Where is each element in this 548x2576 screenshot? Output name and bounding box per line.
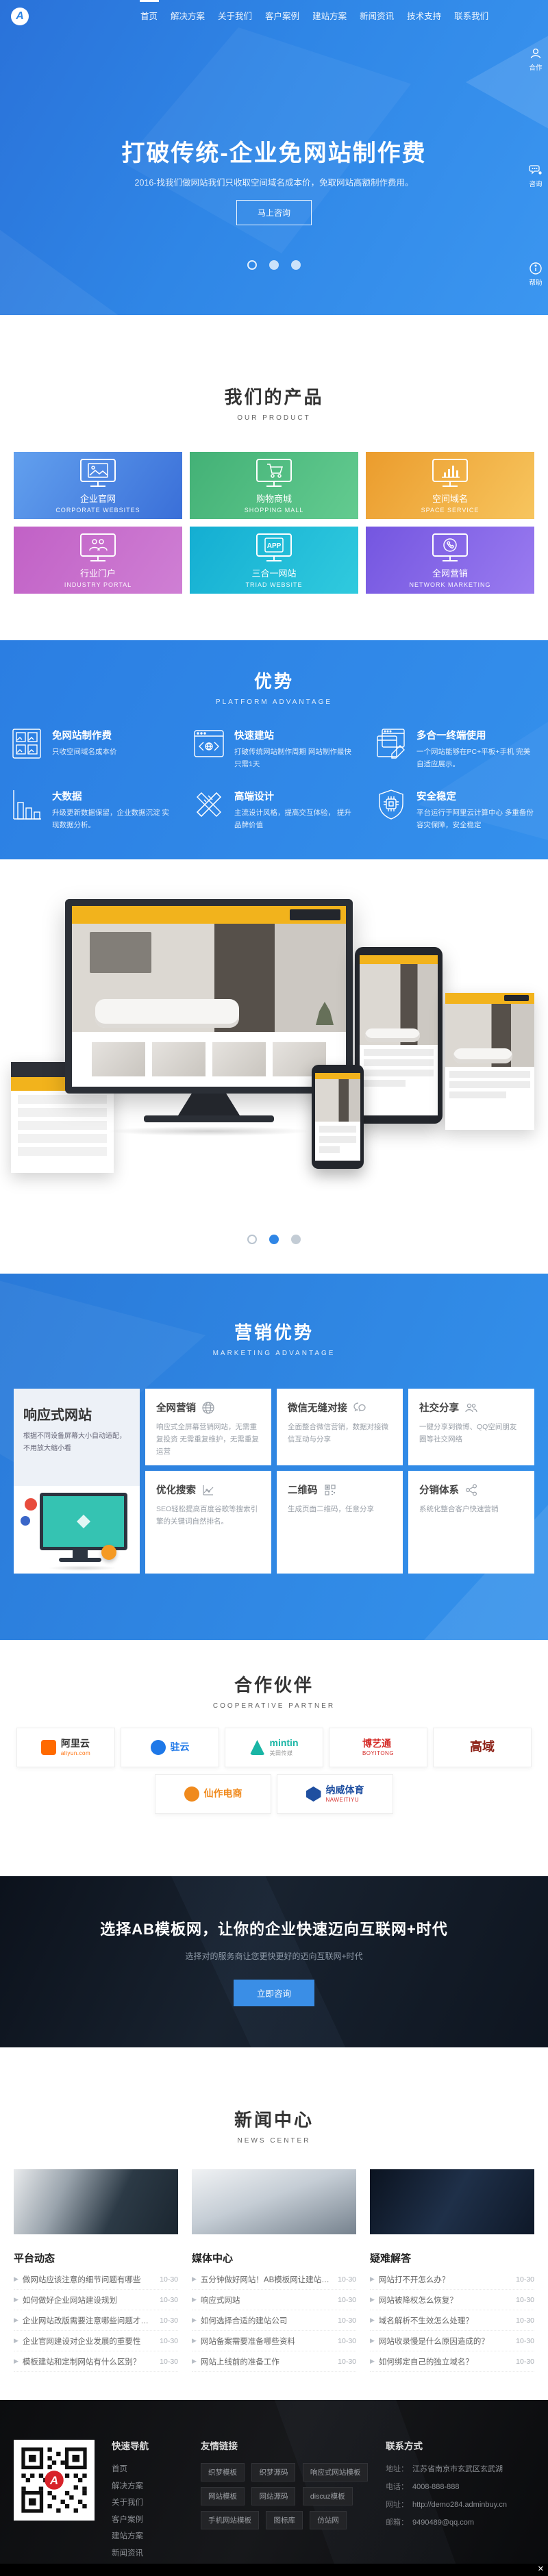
contact-email: 邮箱：9490489@qq.com — [386, 2516, 536, 2527]
friend-link[interactable]: 织梦模板 — [201, 2463, 245, 2482]
carousel-dot[interactable] — [269, 1235, 279, 1244]
monitor-frame — [65, 899, 353, 1094]
advantage-title: 快速建站 — [234, 728, 354, 742]
product-tile-netmarketing[interactable]: 全网营销 NETWORK MARKETING — [366, 527, 534, 594]
partner-xianzuo[interactable]: 仙作电商 — [155, 1774, 271, 1814]
footer-nav-solutions[interactable]: 解决方案 — [112, 2480, 149, 2491]
news-item[interactable]: ▶如何做好企业网站建设规划10-30 — [14, 2290, 178, 2310]
social-dot-blue — [21, 1516, 30, 1526]
news-column-title: 媒体中心 — [192, 2251, 356, 2265]
arrow-icon: ▶ — [192, 2275, 197, 2283]
news-column-media: 媒体中心 ▶五分钟做好网站！AB模板网让建站更简单10-30 ▶响应式网站10-… — [192, 2169, 356, 2372]
aliyun-logo-icon — [41, 1740, 56, 1755]
advantage-desc: 升级更新数据保留，企业数据沉淀 实现数据分析。 — [52, 807, 172, 832]
arrow-icon: ▶ — [370, 2316, 375, 2324]
arrow-icon: ▶ — [14, 2275, 18, 2283]
footer-quick-nav: 快速导航 首页 解决方案 关于我们 客户案例 建站方案 新闻资讯 技术支持 联系… — [112, 2438, 149, 2564]
site-header-bar — [72, 906, 346, 924]
xianzuo-logo-icon — [184, 1786, 199, 1802]
partners-row-1: 阿里云 aliyun.com 驻云 mintin 美田传媒 博艺通 BOYITO… — [0, 1728, 548, 1767]
partner-gaoyu[interactable]: 高域 — [433, 1728, 532, 1767]
partner-nawei[interactable]: 纳威体育 NAWEITIYU — [277, 1774, 393, 1814]
close-icon[interactable]: ✕ — [538, 2564, 544, 2573]
advantages-section: 优势 PLATFORM ADVANTAGE 免网站制作费只收空间域名成本价 快速… — [0, 640, 548, 859]
news-item[interactable]: ▶如何选择合适的建站公司10-30 — [192, 2310, 356, 2331]
shield-chip-icon — [374, 787, 408, 822]
product-name-en: SHOPPING MALL — [245, 507, 304, 514]
footer-nav-title: 快速导航 — [112, 2438, 149, 2452]
chart-line-icon — [201, 1483, 215, 1497]
site-logo[interactable]: A — [11, 8, 29, 25]
product-tile-triad[interactable]: APP 三合一网站 TRIAD WEBSITE — [190, 527, 358, 594]
card-title: 二维码 — [288, 1482, 318, 1497]
arrow-icon: ▶ — [14, 2358, 18, 2365]
marketing-cards-grid: 响应式网站 根据不同设备屏幕大小自动适配，不用放大缩小看 全网营销 响应式全屏幕… — [14, 1389, 534, 1574]
nav-item-contact[interactable]: 联系我们 — [454, 0, 488, 33]
social-dot-red — [25, 1498, 37, 1511]
card-title: 微信无缝对接 — [288, 1400, 347, 1415]
user-icon — [529, 47, 543, 60]
bar-chart-icon — [10, 787, 44, 822]
advantage-title: 高端设计 — [234, 789, 354, 803]
partner-name: 高域 — [470, 1741, 495, 1754]
news-item[interactable]: ▶网站打不开怎么办？10-30 — [370, 2269, 534, 2290]
monitor-screen — [72, 906, 346, 1087]
news-item[interactable]: ▶网站上线前的准备工作10-30 — [192, 2351, 356, 2372]
nav-item-news[interactable]: 新闻资讯 — [360, 0, 394, 33]
friend-link[interactable]: 仿站网 — [310, 2511, 347, 2529]
news-grid: 平台动态 ▶做网站应该注意的细节问题有哪些10-30 ▶如何做好企业网站建设规划… — [14, 2169, 534, 2372]
product-name-zh: 企业官网 — [80, 492, 116, 505]
partner-name: 仙作电商 — [204, 1789, 242, 1799]
card-title: 全网营销 — [156, 1400, 196, 1415]
nav-item-support[interactable]: 技术支持 — [407, 0, 441, 33]
arrow-icon: ▶ — [14, 2296, 18, 2303]
product-name-zh: 空间域名 — [432, 492, 468, 505]
product-name-en: INDUSTRY PORTAL — [64, 581, 132, 588]
hero-carousel-dots — [0, 260, 548, 273]
mintin-logo-icon — [250, 1740, 265, 1755]
desktop-monitor-mockup — [65, 899, 353, 1136]
zhuyun-logo-icon — [151, 1740, 166, 1755]
top-navigation-bar: A 首页 解决方案 关于我们 客户案例 建站方案 新闻资讯 技术支持 联系我们 — [0, 0, 548, 33]
friend-link[interactable]: 织梦源码 — [251, 2463, 295, 2482]
users-icon — [464, 1401, 478, 1415]
card-distribution[interactable]: 分销体系 系统化整合客户快速营销 — [408, 1471, 534, 1574]
news-photo — [14, 2169, 178, 2234]
responsive-showcase-section — [0, 859, 548, 1274]
card-title: 分销体系 — [419, 1482, 459, 1497]
website-screenshot-card — [445, 993, 534, 1130]
arrow-icon: ▶ — [192, 2337, 197, 2345]
products-section: 我们的产品 OUR PRODUCT 企业官网 CORPORATE WEBSITE… — [0, 315, 548, 640]
monitor-chart-icon — [431, 457, 469, 489]
product-name-en: SPACE SERVICE — [421, 507, 480, 514]
page: A 首页 解决方案 关于我们 客户案例 建站方案 新闻资讯 技术支持 联系我们 … — [0, 0, 548, 2576]
footer-nav-cases[interactable]: 客户案例 — [112, 2514, 149, 2525]
browser-code-icon — [192, 727, 226, 761]
nav-item-plans[interactable]: 建站方案 — [312, 0, 347, 33]
friend-link[interactable]: discuz模板 — [303, 2487, 353, 2505]
card-seo[interactable]: 优化搜索 SEO轻松提高百度谷歌等搜索引擎的关键词自然排名。 — [145, 1471, 271, 1574]
toolbar-cooperation[interactable]: 合作 — [523, 47, 548, 72]
marketing-section: 营销优势 MARKETING ADVANTAGE 响应式网站 根据不同设备屏幕大… — [0, 1274, 548, 1640]
product-name-en: CORPORATE WEBSITES — [55, 507, 140, 514]
tablet-mockup — [355, 947, 443, 1124]
news-subtitle: NEWS CENTER — [0, 2137, 548, 2145]
card-desc: SEO轻松提高百度谷歌等搜索引擎的关键词自然排名。 — [156, 1504, 260, 1528]
partner-zhuyun[interactable]: 驻云 — [121, 1728, 219, 1767]
arrow-icon: ▶ — [192, 2316, 197, 2324]
monitor-base — [144, 1115, 274, 1122]
arrow-icon: ▶ — [14, 2337, 18, 2345]
product-tile-portal[interactable]: 行业门户 INDUSTRY PORTAL — [14, 527, 182, 594]
qr-center-logo: A — [49, 2474, 58, 2487]
news-item[interactable]: ▶模板建站和定制网站有什么区别？10-30 — [14, 2351, 178, 2372]
news-item[interactable]: ▶五分钟做好网站！AB模板网让建站更简单10-30 — [192, 2269, 356, 2290]
partner-name: 纳威体育 — [326, 1785, 364, 1795]
advantage-desc: 只收空间域名成本价 — [52, 746, 172, 759]
nav-item-solutions[interactable]: 解决方案 — [171, 0, 205, 33]
product-name-en: TRIAD WEBSITE — [245, 581, 302, 588]
product-name-zh: 三合一网站 — [251, 566, 296, 579]
card-desc: 响应式全屏幕营销网站，无需重复投资 无需重复维护，无需重复运营 — [156, 1422, 260, 1459]
nav-item-about[interactable]: 关于我们 — [218, 0, 252, 33]
carousel-dot[interactable] — [247, 260, 257, 270]
news-title: 新闻中心 — [0, 2106, 548, 2132]
friend-link[interactable]: 响应式网站模板 — [303, 2463, 369, 2482]
news-item[interactable]: ▶如何绑定自己的独立域名？10-30 — [370, 2351, 534, 2372]
partners-row-2: 仙作电商 纳威体育 NAWEITIYU — [0, 1774, 548, 1814]
product-thumbnails-strip — [72, 1032, 346, 1087]
phone-mockup — [312, 1065, 364, 1169]
news-item[interactable]: ▶域名解析不生效怎么处理？10-30 — [370, 2310, 534, 2331]
advantage-title: 大数据 — [52, 789, 172, 803]
advantages-title: 优势 — [0, 668, 548, 693]
monitor-image-icon — [79, 457, 117, 489]
cta-title: 选择AB模板网，让你的企业快速迈向互联网+时代 — [0, 1917, 548, 1939]
arrow-icon: ▶ — [370, 2296, 375, 2303]
partners-section: 合作伙伴 COOPERATIVE PARTNER 阿里云 aliyun.com … — [0, 1640, 548, 1876]
hero-consult-button[interactable]: 马上咨询 — [236, 200, 312, 225]
pointer-cursor — [101, 1545, 116, 1560]
windows-pencil-icon — [374, 727, 408, 761]
news-column-faq: 疑难解答 ▶网站打不开怎么办？10-30 ▶网站被降权怎么恢复？10-30 ▶域… — [370, 2169, 534, 2372]
hero-section: A 首页 解决方案 关于我们 客户案例 建站方案 新闻资讯 技术支持 联系我们 … — [0, 0, 548, 315]
monitor-cart-icon — [255, 457, 293, 489]
arrow-icon: ▶ — [370, 2337, 375, 2345]
partner-name: 驻云 — [171, 1742, 190, 1752]
footer-links-title: 友情链接 — [201, 2438, 373, 2452]
image-grid-icon — [10, 727, 44, 761]
news-column-platform: 平台动态 ▶做网站应该注意的细节问题有哪些10-30 ▶如何做好企业网站建设规划… — [14, 2169, 178, 2372]
nawei-logo-icon — [306, 1786, 321, 1802]
partner-name: 阿里云 — [61, 1739, 90, 1749]
nav-item-cases[interactable]: 客户案例 — [265, 0, 299, 33]
news-column-title: 疑难解答 — [370, 2251, 534, 2265]
carousel-dot[interactable] — [291, 260, 301, 270]
advantage-title: 免网站制作费 — [52, 728, 172, 742]
qrcode-icon — [323, 1483, 337, 1497]
monitor-app-icon: APP — [255, 532, 293, 564]
footer-nav-home[interactable]: 首页 — [112, 2463, 149, 2474]
product-name-zh: 全网营销 — [432, 566, 468, 579]
responsive-feature-card[interactable]: 响应式网站 根据不同设备屏幕大小自动适配，不用放大缩小看 — [14, 1389, 140, 1574]
card-desc: 全面整合微信营销，数据对接微信互动与分享 — [288, 1422, 392, 1446]
nav-item-home[interactable]: 首页 — [140, 0, 158, 33]
hero-title: 打破传统-企业免网站制作费 — [0, 134, 548, 168]
card-wechat[interactable]: 微信无缝对接 全面整合微信营销，数据对接微信互动与分享 — [277, 1389, 403, 1465]
responsive-illustration — [14, 1486, 140, 1574]
product-name-en: NETWORK MARKETING — [409, 581, 490, 588]
news-item[interactable]: ▶做网站应该注意的细节问题有哪些10-30 — [14, 2269, 178, 2290]
feature-title: 响应式网站 — [23, 1404, 130, 1424]
toolbar-label: 帮助 — [523, 277, 548, 287]
carousel-dot[interactable] — [291, 1235, 301, 1244]
product-name-zh: 行业门户 — [80, 566, 116, 579]
news-photo — [370, 2169, 534, 2234]
bottom-bar: ✕ — [0, 2564, 548, 2576]
card-desc: 一键分享到微博、QQ空间朋友圈等社交网络 — [419, 1422, 523, 1446]
product-tile-domain[interactable]: 空间域名 SPACE SERVICE — [366, 452, 534, 519]
partners-subtitle: COOPERATIVE PARTNER — [0, 1702, 548, 1710]
monitor-stand — [178, 1094, 240, 1115]
card-desc: 生成页面二维码，任意分享 — [288, 1504, 392, 1516]
product-tile-mall[interactable]: 购物商城 SHOPPING MALL — [190, 452, 358, 519]
partner-aliyun[interactable]: 阿里云 aliyun.com — [16, 1728, 115, 1767]
arrow-icon: ▶ — [192, 2358, 197, 2365]
footer: A 快速导航 首页 解决方案 关于我们 客户案例 建站方案 新闻资讯 技术支持 … — [0, 2400, 548, 2564]
news-item[interactable]: ▶响应式网站10-30 — [192, 2290, 356, 2310]
partner-boyitong[interactable]: 博艺通 BOYITONG — [329, 1728, 427, 1767]
partner-name: 博艺通 — [362, 1739, 394, 1749]
arrow-icon: ▶ — [192, 2296, 197, 2303]
cta-consult-button[interactable]: 立即咨询 — [234, 1980, 314, 2006]
feature-desc: 根据不同设备屏幕大小自动适配，不用放大缩小看 — [23, 1430, 130, 1455]
globe-icon — [201, 1401, 215, 1415]
advantage-fast-build: 快速建站打破传统网站制作周期 网站制作最快只需1天 — [192, 727, 356, 771]
toolbar-label: 合作 — [523, 62, 548, 72]
news-photo — [192, 2169, 356, 2234]
carousel-dot[interactable] — [269, 260, 279, 270]
wechat-icon — [353, 1401, 366, 1415]
carousel-dot[interactable] — [247, 1235, 257, 1244]
app-icon-label: APP — [267, 542, 282, 550]
footer-friend-links: 友情链接 织梦模板 织梦源码 响应式网站模板 网站模板 网站源码 discuz模… — [201, 2438, 373, 2535]
advantage-desc: 主流设计风格，提高交互体验， 提升品牌价值 — [234, 807, 354, 832]
partners-title: 合作伙伴 — [0, 1671, 548, 1697]
contact-website: 网址：http://demo284.adminbuy.cn — [386, 2499, 536, 2510]
card-social-share[interactable]: 社交分享 一键分享到微博、QQ空间朋友圈等社交网络 — [408, 1389, 534, 1465]
news-item[interactable]: ▶企业网站改版需要注意哪些问题才不掉权重10-30 — [14, 2310, 178, 2331]
friend-link[interactable]: 网站模板 — [201, 2487, 245, 2505]
partner-sub: aliyun.com — [61, 1750, 90, 1756]
card-network-marketing[interactable]: 全网营销 响应式全屏幕营销网站，无需重复投资 无需重复维护，无需重复运营 — [145, 1389, 271, 1465]
card-desc: 系统化整合客户快速营销 — [419, 1504, 523, 1516]
advantage-title: 多合一终端使用 — [416, 728, 536, 742]
footer-contact: 联系方式 地址：江苏省南京市玄武区玄武湖 电话：4008-888-888 网址：… — [386, 2438, 536, 2534]
partner-sub: NAWEITIYU — [326, 1797, 364, 1803]
news-item[interactable]: ▶企业官网建设对企业发展的重要性10-30 — [14, 2331, 178, 2351]
advantages-subtitle: PLATFORM ADVANTAGE — [0, 698, 548, 706]
phone-number-chip — [290, 909, 340, 920]
advantage-desc: 打破传统网站制作周期 网站制作最快只需1天 — [234, 746, 354, 771]
card-title: 优化搜索 — [156, 1482, 196, 1497]
news-item[interactable]: ▶网站被降权怎么恢复？10-30 — [370, 2290, 534, 2310]
advantage-design: 高端设计主流设计风格，提高交互体验， 提升品牌价值 — [192, 787, 356, 832]
products-grid: 企业官网 CORPORATE WEBSITES 购物商城 SHOPPING MA… — [14, 452, 534, 594]
share-icon — [464, 1483, 478, 1497]
main-nav: 首页 解决方案 关于我们 客户案例 建站方案 新闻资讯 技术支持 联系我们 — [140, 0, 501, 33]
bathroom-hero-photo — [72, 924, 346, 1032]
ruler-pencil-icon — [192, 787, 226, 822]
news-section: 新闻中心 NEWS CENTER 平台动态 ▶做网站应该注意的细节问题有哪些10… — [0, 2047, 548, 2400]
footer-nav-about[interactable]: 关于我们 — [112, 2497, 149, 2508]
news-column-title: 平台动态 — [14, 2251, 178, 2265]
showcase-carousel-dots — [0, 1235, 548, 1248]
partner-name: mintin — [270, 1738, 299, 1748]
product-tile-corporate[interactable]: 企业官网 CORPORATE WEBSITES — [14, 452, 182, 519]
hero-subtitle: 2016-找我们做网站我们只收取空间域名成本价，免取网站高额制作费用。 — [0, 175, 548, 188]
footer-nav-news[interactable]: 新闻资讯 — [112, 2547, 149, 2558]
advantage-big-data: 大数据升级更新数据保留，企业数据沉淀 实现数据分析。 — [10, 787, 174, 832]
arrow-icon: ▶ — [14, 2316, 18, 2324]
qr-code-graphic: A — [17, 2443, 91, 2517]
news-item[interactable]: ▶网站收录慢是什么原因造成的？10-30 — [370, 2331, 534, 2351]
card-title: 社交分享 — [419, 1400, 459, 1415]
products-title: 我们的产品 — [0, 383, 548, 409]
footer-qr-code: A — [14, 2440, 95, 2521]
contact-phone: 电话：4008-888-888 — [386, 2481, 536, 2492]
products-subtitle: OUR PRODUCT — [0, 414, 548, 422]
news-item[interactable]: ▶网站备案需要准备哪些资料10-30 — [192, 2331, 356, 2351]
partner-sub: 美田传媒 — [270, 1750, 299, 1757]
arrow-icon: ▶ — [370, 2358, 375, 2365]
friend-link[interactable]: 网站源码 — [251, 2487, 295, 2505]
contact-address: 地址：江苏省南京市玄武区玄武湖 — [386, 2463, 536, 2474]
card-qrcode[interactable]: 二维码 生成页面二维码，任意分享 — [277, 1471, 403, 1574]
friend-link[interactable]: 手机网站模板 — [201, 2511, 259, 2529]
monitor-users-icon — [79, 532, 117, 564]
partner-sub: BOYITONG — [362, 1750, 394, 1756]
friend-link[interactable]: 图标库 — [266, 2511, 303, 2529]
cta-section: 选择AB模板网，让你的企业快速迈向互联网+时代 选择对的服务商让您更快更好的迈向… — [0, 1876, 548, 2047]
arrow-icon: ▶ — [370, 2275, 375, 2283]
footer-nav-plans[interactable]: 建站方案 — [112, 2530, 149, 2541]
cta-subtitle: 选择对的服务商让您更快更好的迈向互联网+时代 — [0, 1950, 548, 1962]
hero-decor-polygon — [466, 21, 548, 144]
footer-contact-title: 联系方式 — [386, 2438, 536, 2452]
product-name-zh: 购物商城 — [256, 492, 292, 505]
monitor-phone-icon — [431, 532, 469, 564]
partner-mintin[interactable]: mintin 美田传媒 — [225, 1728, 323, 1767]
advantage-free-fee: 免网站制作费只收空间域名成本价 — [10, 727, 174, 771]
